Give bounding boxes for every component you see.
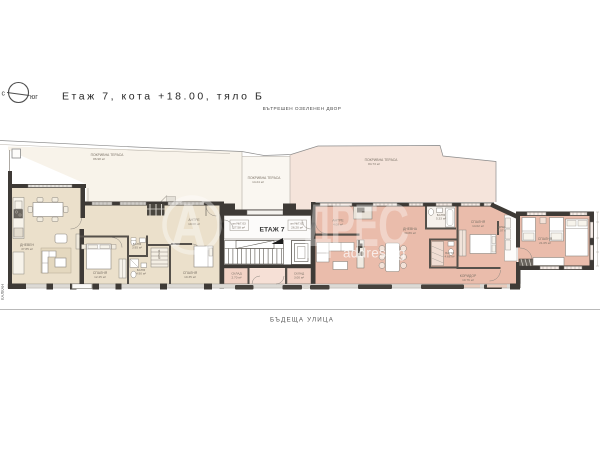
svg-text:84.73 м²: 84.73 м² [368, 162, 380, 166]
svg-text:Етаж 7, кота +18.00, тяло Б: Етаж 7, кота +18.00, тяло Б [62, 91, 264, 103]
svg-text:10.35 м²: 10.35 м² [184, 275, 196, 279]
svg-text:КАЛКАН: КАЛКАН [0, 284, 5, 300]
svg-text:ЕТАЖ 7: ЕТАЖ 7 [260, 227, 285, 234]
svg-text:addres.bg: addres.bg [343, 246, 406, 261]
svg-text:37.85 м²: 37.85 м² [21, 247, 33, 251]
svg-text:27.58 м²: 27.58 м² [233, 226, 245, 230]
svg-text:3.95 м²: 3.95 м² [132, 246, 142, 250]
svg-text:4.66 м²: 4.66 м² [444, 255, 454, 259]
svg-text:ДРЕШ.: ДРЕШ. [157, 249, 161, 259]
svg-text:2.70 м²: 2.70 м² [231, 276, 241, 280]
svg-text:12.45 м²: 12.45 м² [94, 275, 106, 279]
svg-text:ВЪТРЕШЕН ОЗЕЛЕНЕН ДВОР: ВЪТРЕШЕН ОЗЕЛЕНЕН ДВОР [263, 106, 342, 111]
svg-text:14.02 м²: 14.02 м² [472, 224, 484, 228]
svg-text:Д: Д [305, 192, 332, 259]
svg-text:5.33 м²: 5.33 м² [436, 217, 446, 221]
svg-text:86.98 м²: 86.98 м² [93, 157, 105, 161]
svg-text:А: А [171, 192, 206, 259]
svg-text:с: с [2, 91, 6, 98]
svg-text:3.00 м²: 3.00 м² [294, 276, 304, 280]
svg-text:14.24 м²: 14.24 м² [252, 180, 264, 184]
svg-text:4.90 м²: 4.90 м² [136, 272, 146, 276]
svg-text:юг: юг [30, 94, 38, 101]
svg-text:10.76 м²: 10.76 м² [462, 278, 474, 282]
svg-text:БЪДЕЩА УЛИЦА: БЪДЕЩА УЛИЦА [270, 317, 334, 324]
svg-text:21.05 м²: 21.05 м² [539, 241, 551, 245]
svg-text:26.20 м²: 26.20 м² [291, 226, 303, 230]
